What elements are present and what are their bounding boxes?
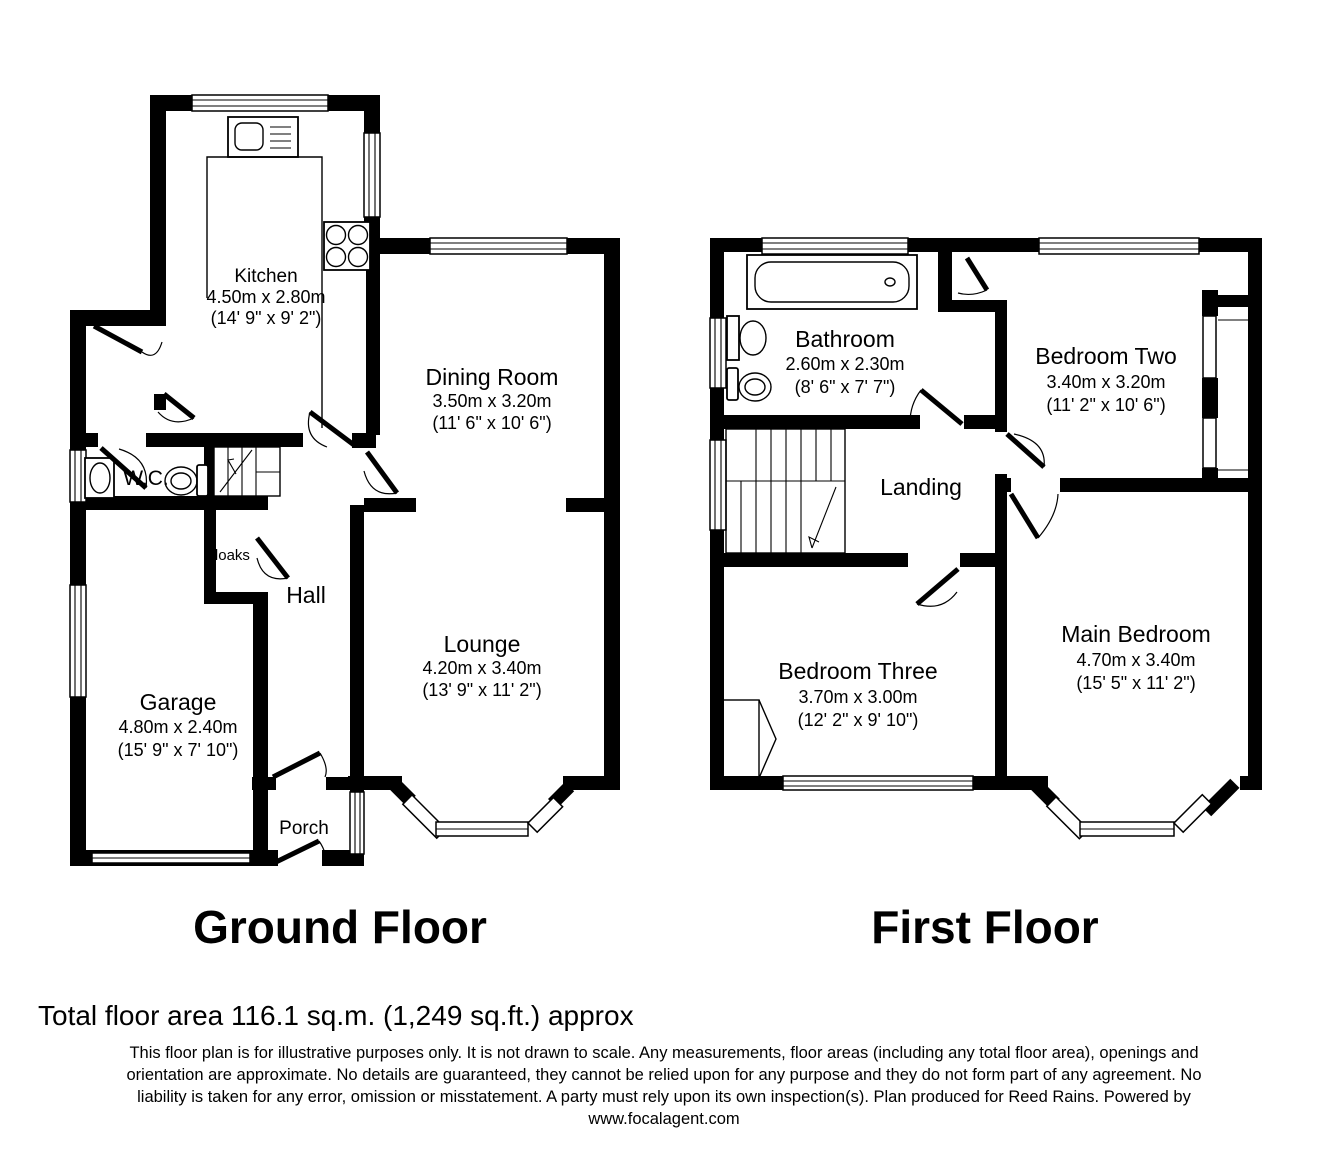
kitchen-sink-icon — [228, 117, 298, 157]
lounge-imperial: (13' 9" x 11' 2") — [422, 680, 541, 700]
bathroom-sink-icon — [727, 316, 766, 360]
kitchen-imperial: (14' 9" x 9' 2") — [211, 308, 322, 328]
bathroom-metric: 2.60m x 2.30m — [785, 354, 904, 374]
main-bedroom-door-icon — [1011, 494, 1058, 538]
main-bedroom-metric: 4.70m x 3.40m — [1076, 650, 1195, 670]
porch-label: Porch — [279, 818, 329, 839]
wc-window-icon — [70, 450, 86, 502]
main-bedroom-bay-window-icon — [1047, 795, 1212, 839]
disclaimer: This floor plan is for illustrative purp… — [0, 1042, 1328, 1130]
kitchen-top-window-icon — [192, 95, 328, 111]
bedroom-three-door-icon — [917, 569, 958, 606]
first-floor-plan: Bathroom 2.60m x 2.30m (8' 6" x 7' 7") B… — [710, 238, 1262, 953]
hall-label: Hall — [286, 582, 326, 608]
porch-entry-door-icon — [274, 841, 325, 863]
bedroom-two-door-icon — [1007, 434, 1044, 467]
hall-porch-door-icon — [273, 753, 326, 777]
landing-label: Landing — [880, 474, 962, 500]
dining-room-metric: 3.50m x 3.20m — [432, 391, 551, 411]
first-floor-windows — [710, 238, 1248, 839]
floor-plan-canvas: Kitchen 4.50m x 2.80m (14' 9" x 9' 2") D… — [0, 0, 1328, 1151]
entrance-door-icon — [94, 326, 162, 355]
porch-window-icon — [350, 792, 364, 854]
wc-sink-icon — [85, 458, 114, 498]
stairs-upper-icon — [726, 429, 845, 553]
bathroom-top-window-icon — [762, 238, 908, 254]
kitchen-side-window-icon — [364, 133, 380, 217]
bedroom-two-imperial: (11' 2" x 10' 6") — [1046, 395, 1165, 415]
kitchen-label: Kitchen — [234, 266, 297, 287]
ground-floor-labels: Kitchen 4.50m x 2.80m (14' 9" x 9' 2") D… — [118, 266, 559, 953]
disclaimer-line: www.focalagent.com — [0, 1108, 1328, 1130]
wardrobe-icon — [717, 700, 776, 778]
floor-plan-drawing: Kitchen 4.50m x 2.80m (14' 9" x 9' 2") D… — [0, 0, 1328, 1151]
bath-icon — [747, 255, 917, 309]
bathroom-label: Bathroom — [795, 326, 895, 352]
main-bedroom-label: Main Bedroom — [1061, 621, 1211, 647]
kitchen-metric: 4.50m x 2.80m — [206, 287, 325, 307]
dining-room-label: Dining Room — [426, 364, 559, 390]
bedroom-two-top-window-icon — [1039, 238, 1199, 254]
bedroom-three-metric: 3.70m x 3.00m — [798, 687, 917, 707]
wc-toilet-icon — [165, 465, 208, 496]
cupboard-door-icon — [958, 258, 987, 294]
hob-icon — [324, 222, 370, 270]
garage-metric: 4.80m x 2.40m — [118, 717, 237, 737]
garage-window-icon — [70, 585, 86, 697]
cloaks-label: Cloaks — [204, 547, 250, 564]
bedroom-three-window-icon — [783, 776, 973, 790]
wc-label: W.C. — [123, 467, 169, 490]
stairs-icon — [214, 447, 280, 496]
garage-label: Garage — [140, 689, 217, 715]
lounge-bay-window-icon — [403, 795, 563, 838]
main-bedroom-imperial: (15' 5" x 11' 2") — [1076, 673, 1195, 693]
garage-imperial: (15' 9" x 7' 10") — [118, 740, 239, 760]
bedroom-three-label: Bedroom Three — [778, 658, 937, 684]
disclaimer-line: This floor plan is for illustrative purp… — [0, 1042, 1328, 1064]
ground-floor-plan: Kitchen 4.50m x 2.80m (14' 9" x 9' 2") D… — [70, 95, 620, 953]
first-floor-title: First Floor — [871, 901, 1099, 953]
landing-window-icon — [710, 440, 726, 530]
dining-window-icon — [430, 238, 567, 254]
bathroom-imperial: (8' 6" x 7' 7") — [795, 377, 896, 397]
bathroom-side-window-icon — [710, 318, 726, 388]
disclaimer-line: liability is taken for any error, omissi… — [0, 1086, 1328, 1108]
total-floor-area: Total floor area 116.1 sq.m. (1,249 sq.f… — [38, 1000, 634, 1032]
bedroom-three-imperial: (12' 2" x 9' 10") — [798, 710, 919, 730]
garage-door-icon — [92, 853, 250, 863]
cloaks-door-icon — [257, 538, 288, 579]
bathroom-toilet-icon — [727, 368, 771, 401]
first-floor-walls — [710, 238, 1262, 816]
lounge-metric: 4.20m x 3.40m — [422, 658, 541, 678]
disclaimer-line: orientation are approximate. No details … — [0, 1064, 1328, 1086]
bedroom-two-metric: 3.40m x 3.20m — [1046, 372, 1165, 392]
ground-floor-title: Ground Floor — [193, 901, 487, 953]
dining-room-imperial: (11' 6" x 10' 6") — [432, 413, 551, 433]
bedroom-two-label: Bedroom Two — [1035, 343, 1176, 369]
lounge-label: Lounge — [444, 631, 521, 657]
